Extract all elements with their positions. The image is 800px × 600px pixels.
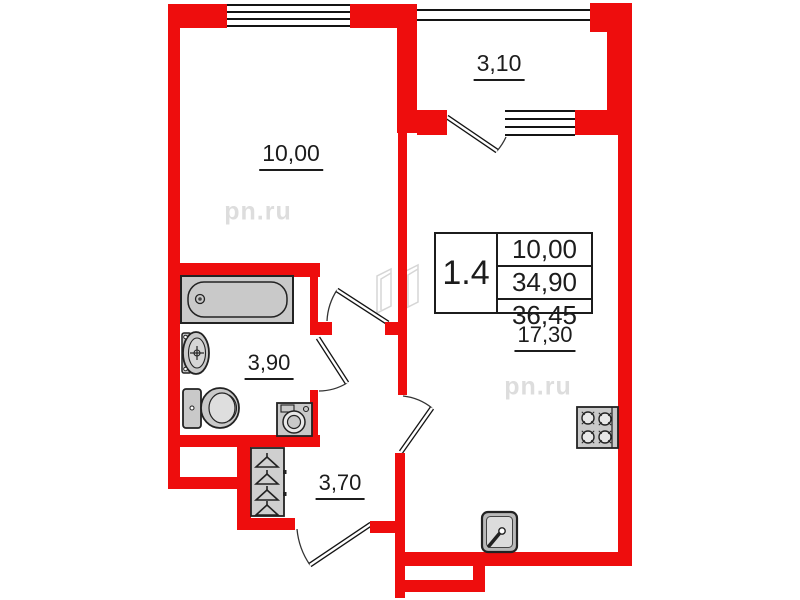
toilet-icon xyxy=(183,388,239,428)
bathtub-icon xyxy=(181,276,293,323)
watermark-text: pn.ru xyxy=(504,373,572,402)
unit-info-table: 1.4 10,00 34,90 36,45 xyxy=(434,232,593,314)
unit-areas-column: 10,00 34,90 36,45 xyxy=(498,234,591,312)
room-label-hallway: 3,70 xyxy=(316,470,365,500)
kitchen-sink-icon xyxy=(482,512,517,552)
room-label-bathroom: 3,90 xyxy=(245,350,294,380)
fixtures-layer xyxy=(0,0,800,600)
room-label-hallway-value: 3,70 xyxy=(316,470,365,500)
washing-machine-icon xyxy=(277,403,312,436)
room-label-living-value: 10,00 xyxy=(259,140,323,171)
floor-plan: 10,00 3,10 3,90 3,70 17,30 1.4 10,00 34,… xyxy=(0,0,800,600)
unit-area-row: 10,00 xyxy=(498,234,591,267)
unit-number-cell: 1.4 xyxy=(436,234,498,312)
wardrobe-icon xyxy=(251,448,287,516)
room-label-bathroom-value: 3,90 xyxy=(245,350,294,380)
stove-icon xyxy=(577,407,618,448)
room-label-balcony: 3,10 xyxy=(474,50,525,81)
room-label-living: 10,00 xyxy=(259,140,323,171)
sink-icon xyxy=(182,332,209,374)
watermark-text: pn.ru xyxy=(224,198,292,227)
unit-area-row: 36,45 xyxy=(498,300,591,331)
unit-area-row: 34,90 xyxy=(498,267,591,300)
room-label-balcony-value: 3,10 xyxy=(474,50,525,81)
